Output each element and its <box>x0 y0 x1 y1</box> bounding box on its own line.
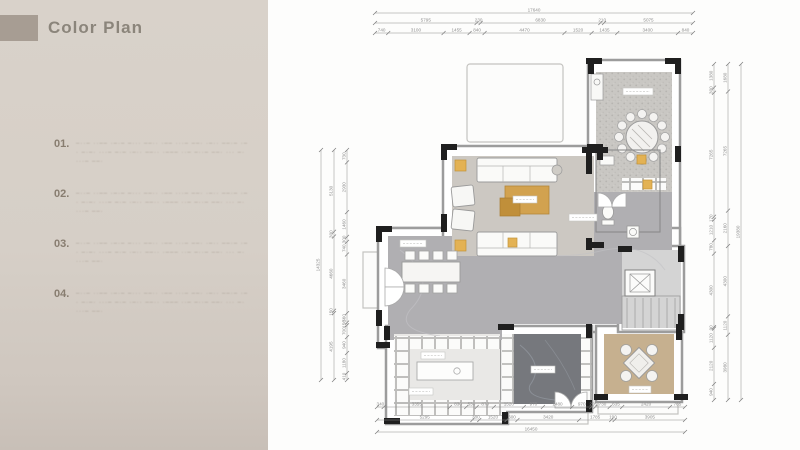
tea-chair <box>621 345 632 356</box>
dimension-row: 168072652160430011203980 <box>723 62 731 402</box>
dimension-label: 840 <box>473 28 481 33</box>
floor-plan-svg: 1764057952306830210507574031001455840447… <box>305 0 800 450</box>
round-dining-table <box>626 121 658 153</box>
left-panel: Color Plan 01. –··– ··–– ·–·– –··· ––·· … <box>0 0 268 450</box>
note-line: · –·–· ···– –·– ·–·· ––·· ·––– ··– –··– … <box>76 249 254 258</box>
dimension-label: 870 <box>481 402 489 407</box>
long-dining-table <box>402 262 460 282</box>
room-label <box>421 352 445 359</box>
dimension-label: 3400 <box>643 28 654 33</box>
dimension-label: 740 <box>342 244 347 252</box>
tea-room-furniture <box>621 345 658 382</box>
study-wardrobe-left <box>502 334 514 404</box>
note-line: ···– ––· <box>76 308 110 317</box>
dimension-row: 19380 <box>736 62 744 402</box>
dimension-label: 765 <box>674 402 682 407</box>
gold-accent <box>637 155 646 164</box>
dimension-label: 340 <box>377 402 385 407</box>
dimension-row: 14325 <box>316 148 324 382</box>
dining-chair <box>649 152 658 161</box>
room-label <box>629 386 651 393</box>
dimension-label: 190 <box>609 415 617 420</box>
note-line: ···– ––· <box>76 258 110 267</box>
dimension-label: 600 <box>508 415 516 420</box>
dimension-label: 14325 <box>316 258 321 271</box>
dimension-label: 4470 <box>519 28 530 33</box>
dimension-label: 3420 <box>543 415 554 420</box>
page-title: Color Plan <box>48 18 143 38</box>
dining-chair <box>618 144 627 153</box>
dimension-label: 1120 <box>723 320 728 330</box>
armchair <box>451 209 475 231</box>
dimension-label: 7265 <box>709 149 714 160</box>
dimension-label: 1435 <box>599 28 610 33</box>
dining-chair <box>638 110 647 119</box>
dimension-label: 940 <box>342 341 347 349</box>
tea-chair <box>621 371 632 382</box>
gold-side-table <box>455 160 466 171</box>
dimension-label: 6830 <box>535 18 546 23</box>
note-line: · –·–· ···– –·– ·–·· ––·· ·––– ··– –··– … <box>76 149 254 158</box>
dimension-label: 1520 <box>488 415 499 420</box>
dimension-label: 5075 <box>643 18 654 23</box>
dimension-label: 16450 <box>525 427 538 432</box>
note-number: 02. <box>54 188 76 217</box>
dimension-label: 19380 <box>736 225 741 238</box>
note-item: 04. –··– ··–– ·–·– –··· ––·· ·–– ···– ––… <box>54 288 254 317</box>
room-label <box>623 88 653 95</box>
dimension-label: 150 <box>329 308 334 316</box>
terrace-top <box>467 64 563 142</box>
washer <box>627 226 639 238</box>
dining-cabinet <box>591 74 603 100</box>
room-label <box>513 196 537 203</box>
dimension-label: 740 <box>378 28 386 33</box>
dimension-row: 17640 <box>373 8 695 16</box>
kitchen-counter-top <box>410 336 500 349</box>
dimension-label: 5295 <box>420 415 431 420</box>
dimension-label: 2420 <box>641 402 652 407</box>
tea-chair <box>647 371 658 382</box>
dimension-label: 150 <box>342 320 347 328</box>
dimension-label: 300 <box>709 86 714 94</box>
porch-left <box>363 252 378 308</box>
room-label <box>569 214 597 221</box>
title-accent-block <box>0 15 38 41</box>
dimension-label: 205 <box>589 402 597 407</box>
dimension-row: 16450 <box>375 427 687 435</box>
notes-list: 01. –··– ··–– ·–·– –··· ––·· ·–– ···– ––… <box>54 138 254 338</box>
dimension-label: 3460 <box>342 278 347 289</box>
dimension-label: 780 <box>709 243 714 251</box>
gold-accent <box>508 238 517 247</box>
note-line: –··– ··–– ·–·– –··· ––·· ·–– ···– ––· ·–… <box>76 290 254 299</box>
dimension-row: 7302930146030074034605601507009401180410 <box>342 148 350 382</box>
dimension-label: 3980 <box>723 362 728 373</box>
note-line: –··– ··–– ·–·– –··· ––·· ·–– ···– ––· ·–… <box>76 190 254 199</box>
note-line: ···– ––· <box>76 208 110 217</box>
dimension-label: 1210 <box>709 224 714 235</box>
dimension-label: 700 <box>342 327 347 335</box>
dimension-label: 5130 <box>329 185 334 196</box>
dimension-label: 2930 <box>342 182 347 193</box>
dimension-label: 1520 <box>573 28 584 33</box>
dimension-label: 17640 <box>528 8 541 13</box>
dimension-label: 4195 <box>329 341 334 352</box>
dining-chair <box>618 121 627 130</box>
title-row: Color Plan <box>0 15 143 41</box>
dimension-label: 300 <box>329 230 334 238</box>
dimension-label: 3905 <box>645 415 656 420</box>
dimension-label: 970 <box>578 402 586 407</box>
dimension-label: 530 <box>468 402 476 407</box>
note-line: · –·–· ···– –·– ·–·· ––·· ·––– ··– –··– … <box>76 199 254 208</box>
dimension-label: 840 <box>682 28 690 33</box>
dimension-label: 940 <box>709 388 714 396</box>
note-number: 03. <box>54 238 76 267</box>
dimension-label: 4300 <box>709 285 714 296</box>
dining-chair <box>626 152 635 161</box>
note-line: –··– ··–– ·–·– –··· ––·· ·–– ···– ––· ·–… <box>76 140 254 149</box>
floor-plan-area: 1764057952306830210507574031001455840447… <box>268 0 800 450</box>
dimension-label: 5795 <box>421 18 432 23</box>
room-label <box>400 240 426 247</box>
dimension-label: 4660 <box>329 268 334 279</box>
note-item: 03. –··– ··–– ·–·– –··· ––·· ·–– ···– ––… <box>54 238 254 267</box>
dining-chair <box>657 121 666 130</box>
room-label <box>531 366 555 373</box>
dimension-label: 1785 <box>590 415 601 420</box>
dimension-row: 513030046601504195 <box>329 148 337 382</box>
dimension-label: 3355 <box>412 402 423 407</box>
note-text-illegible: –··– ··–– ·–·– –··· ––·· ·–– ···– ––· ·–… <box>76 238 254 267</box>
presentation-slide: Color Plan 01. –··– ··–– ·–·– –··· ––·· … <box>0 0 800 450</box>
dining-chair <box>626 113 635 122</box>
room-label <box>409 388 433 395</box>
note-number: 01. <box>54 138 76 167</box>
dimension-label: 210 <box>598 18 606 23</box>
side-table-round <box>552 165 562 175</box>
dimension-row: 13803007265170121078043009011202120940 <box>709 62 717 402</box>
note-text-illegible: –··– ··–– ·–·– –··· ––·· ·–– ···– ––· ·–… <box>76 288 254 317</box>
dimension-row: 740310014558404470152014353400840 <box>373 28 695 36</box>
kitchen-island <box>417 362 473 380</box>
dining-chair <box>615 133 624 142</box>
dimension-label: 1455 <box>451 28 462 33</box>
dimension-row: 579523068302105075 <box>373 18 695 26</box>
dimension-label: 730 <box>342 152 347 160</box>
dimension-label: 380 <box>472 415 480 420</box>
dimension-label: 1680 <box>723 72 728 83</box>
note-item: 01. –··– ··–– ·–·– –··· ––·· ·–– ···– ––… <box>54 138 254 167</box>
dimension-label: 1460 <box>342 219 347 230</box>
dimension-label: 730 <box>599 402 607 407</box>
note-number: 04. <box>54 288 76 317</box>
note-text-illegible: –··– ··–– ·–·– –··· ––·· ·–– ···– ––· ·–… <box>76 188 254 217</box>
dimension-label: 170 <box>709 214 714 222</box>
dining-chair <box>661 133 670 142</box>
dimension-label: 1520 <box>504 402 515 407</box>
note-line: · –·–· ···– –·– ·–·· ––·· ·––– ··– –··– … <box>76 299 254 308</box>
dimension-label: 2160 <box>723 223 728 234</box>
dimension-label: 1120 <box>709 333 714 343</box>
dimension-label: 230 <box>475 18 483 23</box>
gold-side-table <box>455 240 466 251</box>
dimension-label: 1480 <box>552 402 563 407</box>
dining-chair <box>657 144 666 153</box>
dimension-label: 830 <box>454 402 462 407</box>
sofa-top <box>477 158 557 182</box>
gold-accent <box>643 180 652 189</box>
note-text-illegible: –··– ··–– ·–·– –··· ––·· ·–– ···– ––· ·–… <box>76 138 254 167</box>
dimension-label: 7265 <box>723 146 728 157</box>
dimension-label: 3100 <box>411 28 422 33</box>
dimension-label: 4300 <box>723 276 728 287</box>
note-line: ···– ––· <box>76 158 110 167</box>
dining-chair <box>649 113 658 122</box>
dimension-label: 1180 <box>342 358 347 368</box>
dimension-label: 970 <box>530 402 538 407</box>
tea-chair <box>647 345 658 356</box>
porch-bottom-right <box>598 402 678 414</box>
note-item: 02. –··– ··–– ·–·– –··· ––·· ·–– ···– ––… <box>54 188 254 217</box>
dimension-label: 2120 <box>709 360 714 371</box>
dimension-label: 300 <box>342 235 347 243</box>
dimension-label: 90 <box>709 325 714 331</box>
dimension-label: 1380 <box>709 70 714 81</box>
armchair <box>451 185 475 207</box>
dimension-label: 635 <box>612 402 620 407</box>
toilet-tank <box>602 220 614 225</box>
dimension-label: 410 <box>342 372 347 380</box>
note-line: –··– ··–– ·–·– –··· ––·· ·–– ···– ––· ·–… <box>76 240 254 249</box>
